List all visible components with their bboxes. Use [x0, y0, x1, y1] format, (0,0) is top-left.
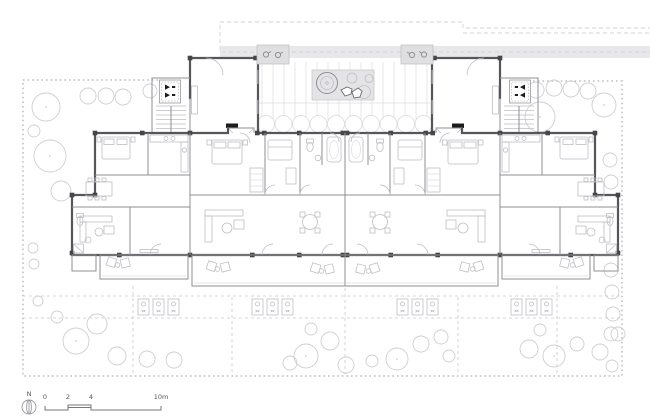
water-feature — [312, 70, 374, 100]
trees-bottom — [33, 296, 625, 373]
north-label: N — [27, 390, 32, 398]
floor-plan-canvas: N 0 2 4 10m — [0, 0, 650, 420]
scale-tick-10m: 10m — [154, 393, 169, 401]
scale-tick-0: 0 — [43, 393, 47, 401]
north-arrow: N — [22, 390, 36, 414]
building-right-half — [345, 45, 621, 374]
scale-tick-2: 2 — [66, 393, 70, 401]
hedge-row — [258, 116, 433, 133]
courtyard — [258, 62, 433, 133]
building-left-half — [70, 45, 346, 374]
scale-bar: 0 2 4 10m — [43, 393, 168, 410]
floor-plan-page: N 0 2 4 10m — [0, 0, 650, 420]
scale-tick-4: 4 — [89, 393, 93, 401]
